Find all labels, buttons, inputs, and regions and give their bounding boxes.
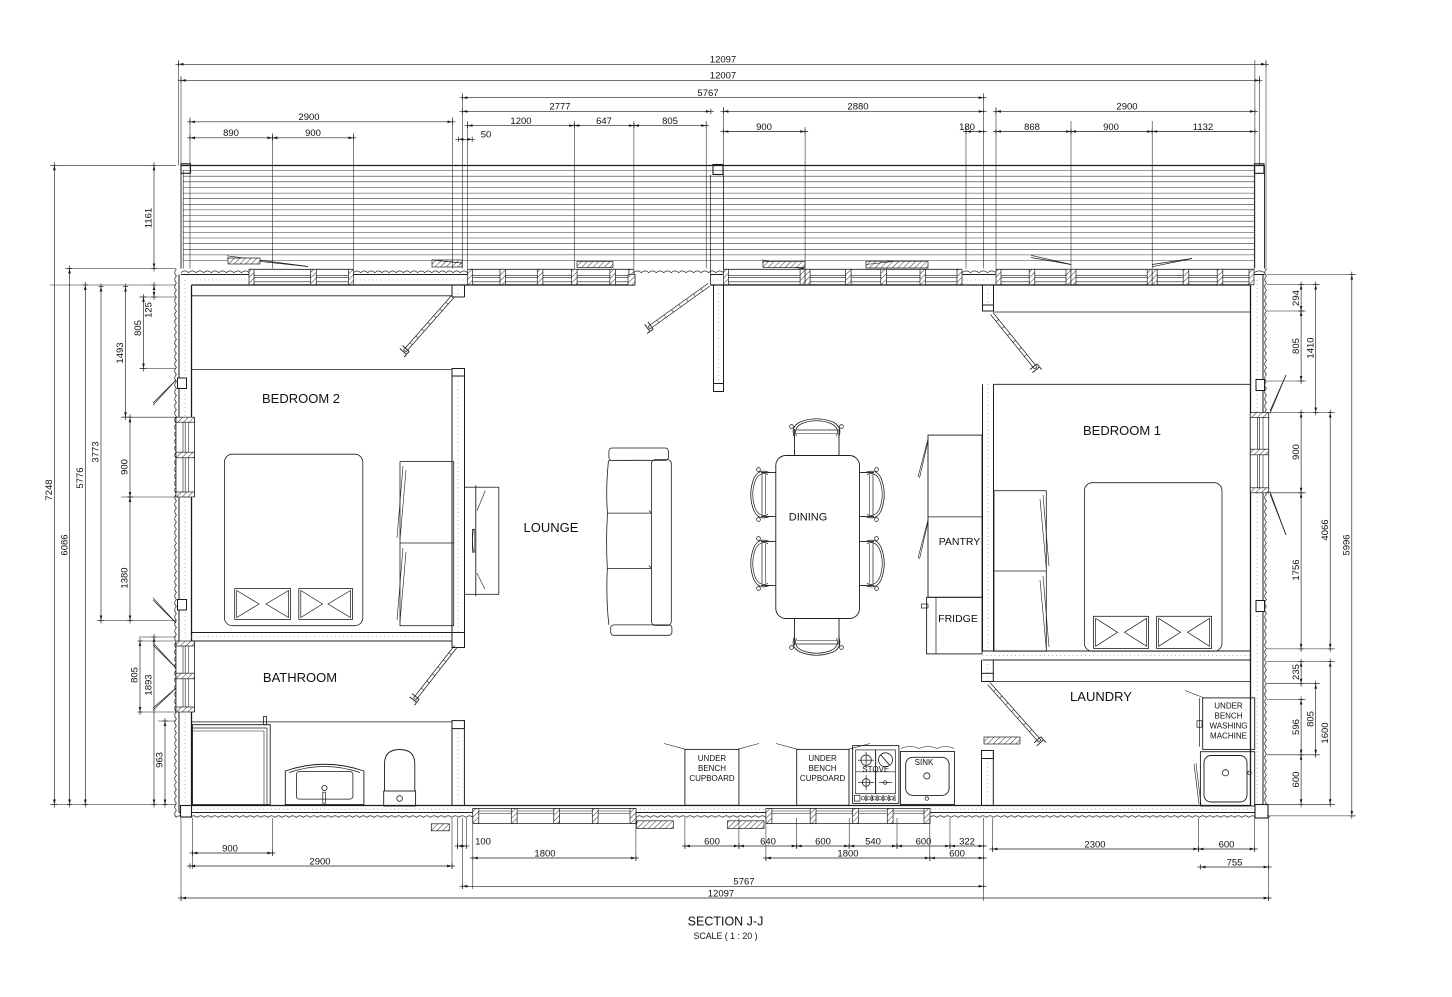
svg-text:600: 600 bbox=[1219, 839, 1235, 850]
svg-text:LOUNGE: LOUNGE bbox=[524, 520, 579, 535]
svg-text:890: 890 bbox=[223, 128, 239, 139]
svg-text:2900: 2900 bbox=[309, 856, 330, 867]
svg-text:647: 647 bbox=[596, 116, 612, 127]
svg-text:1893: 1893 bbox=[144, 674, 155, 695]
svg-text:1800: 1800 bbox=[837, 848, 858, 859]
svg-text:1200: 1200 bbox=[510, 116, 531, 127]
svg-text:6086: 6086 bbox=[59, 534, 70, 555]
svg-text:SECTION J-J: SECTION J-J bbox=[688, 915, 764, 929]
svg-text:294: 294 bbox=[1291, 290, 1302, 306]
svg-text:805: 805 bbox=[662, 116, 678, 127]
svg-text:2900: 2900 bbox=[1116, 102, 1137, 113]
svg-text:600: 600 bbox=[916, 836, 932, 847]
svg-text:1756: 1756 bbox=[1291, 559, 1302, 580]
svg-text:UNDER: UNDER bbox=[1214, 702, 1243, 711]
svg-text:180: 180 bbox=[959, 122, 975, 133]
svg-text:900: 900 bbox=[305, 128, 321, 139]
svg-text:540: 540 bbox=[865, 836, 881, 847]
svg-text:BATHROOM: BATHROOM bbox=[263, 670, 337, 685]
svg-text:DINING: DINING bbox=[789, 512, 828, 524]
svg-text:4066: 4066 bbox=[1320, 519, 1331, 540]
svg-text:805: 805 bbox=[133, 320, 144, 336]
svg-text:3773: 3773 bbox=[91, 441, 102, 462]
svg-text:600: 600 bbox=[815, 836, 831, 847]
svg-text:1410: 1410 bbox=[1305, 337, 1316, 358]
svg-text:1380: 1380 bbox=[120, 567, 131, 588]
svg-text:963: 963 bbox=[155, 752, 166, 768]
svg-text:600: 600 bbox=[704, 836, 720, 847]
svg-text:BENCH: BENCH bbox=[809, 764, 837, 773]
svg-text:UNDER: UNDER bbox=[698, 754, 727, 763]
svg-text:100: 100 bbox=[475, 836, 491, 847]
svg-text:1600: 1600 bbox=[1320, 722, 1331, 743]
svg-text:UNDER: UNDER bbox=[808, 754, 837, 763]
svg-text:PANTRY: PANTRY bbox=[939, 536, 981, 548]
svg-text:900: 900 bbox=[1103, 122, 1119, 133]
svg-text:1132: 1132 bbox=[1193, 122, 1213, 133]
svg-text:12007: 12007 bbox=[710, 71, 736, 82]
svg-text:SINK: SINK bbox=[915, 758, 934, 767]
svg-text:235: 235 bbox=[1291, 664, 1302, 680]
svg-text:2777: 2777 bbox=[549, 102, 570, 113]
svg-text:STOVE: STOVE bbox=[862, 765, 889, 774]
svg-text:596: 596 bbox=[1291, 719, 1302, 735]
svg-text:1161: 1161 bbox=[144, 208, 155, 228]
svg-text:868: 868 bbox=[1024, 122, 1040, 133]
svg-text:900: 900 bbox=[756, 122, 772, 133]
svg-text:7248: 7248 bbox=[44, 479, 55, 500]
svg-text:12097: 12097 bbox=[708, 888, 734, 899]
svg-text:50: 50 bbox=[481, 130, 492, 141]
svg-text:SCALE ( 1 : 20 ): SCALE ( 1 : 20 ) bbox=[693, 931, 757, 941]
svg-text:5776: 5776 bbox=[75, 467, 86, 488]
svg-text:BEDROOM 2: BEDROOM 2 bbox=[262, 391, 340, 406]
svg-text:640: 640 bbox=[760, 836, 776, 847]
svg-text:FRIDGE: FRIDGE bbox=[938, 613, 978, 625]
svg-text:2880: 2880 bbox=[847, 102, 868, 113]
svg-text:5767: 5767 bbox=[697, 88, 718, 99]
svg-text:WASHING: WASHING bbox=[1210, 722, 1248, 731]
svg-text:CUPBOARD: CUPBOARD bbox=[800, 774, 846, 783]
svg-text:322: 322 bbox=[959, 836, 975, 847]
svg-text:5996: 5996 bbox=[1342, 534, 1353, 555]
svg-text:BENCH: BENCH bbox=[1214, 712, 1242, 721]
svg-text:125: 125 bbox=[144, 302, 155, 318]
svg-text:1493: 1493 bbox=[115, 342, 126, 363]
svg-text:900: 900 bbox=[120, 459, 131, 475]
svg-text:BEDROOM 1: BEDROOM 1 bbox=[1083, 423, 1161, 438]
svg-text:755: 755 bbox=[1227, 857, 1243, 868]
svg-text:5767: 5767 bbox=[733, 877, 754, 888]
svg-text:1800: 1800 bbox=[534, 848, 555, 859]
svg-text:MACHINE: MACHINE bbox=[1210, 732, 1247, 741]
svg-text:BENCH: BENCH bbox=[698, 764, 726, 773]
svg-text:600: 600 bbox=[1291, 772, 1302, 788]
svg-text:805: 805 bbox=[130, 667, 141, 683]
svg-text:CUPBOARD: CUPBOARD bbox=[689, 774, 735, 783]
svg-text:900: 900 bbox=[222, 843, 238, 854]
svg-text:805: 805 bbox=[1291, 338, 1302, 354]
svg-text:900: 900 bbox=[1291, 444, 1302, 460]
svg-text:805: 805 bbox=[1305, 711, 1316, 727]
svg-text:2300: 2300 bbox=[1084, 839, 1105, 850]
svg-text:12097: 12097 bbox=[710, 55, 736, 66]
svg-text:600: 600 bbox=[949, 848, 965, 859]
svg-text:LAUNDRY: LAUNDRY bbox=[1070, 689, 1132, 704]
svg-text:2900: 2900 bbox=[298, 112, 319, 123]
